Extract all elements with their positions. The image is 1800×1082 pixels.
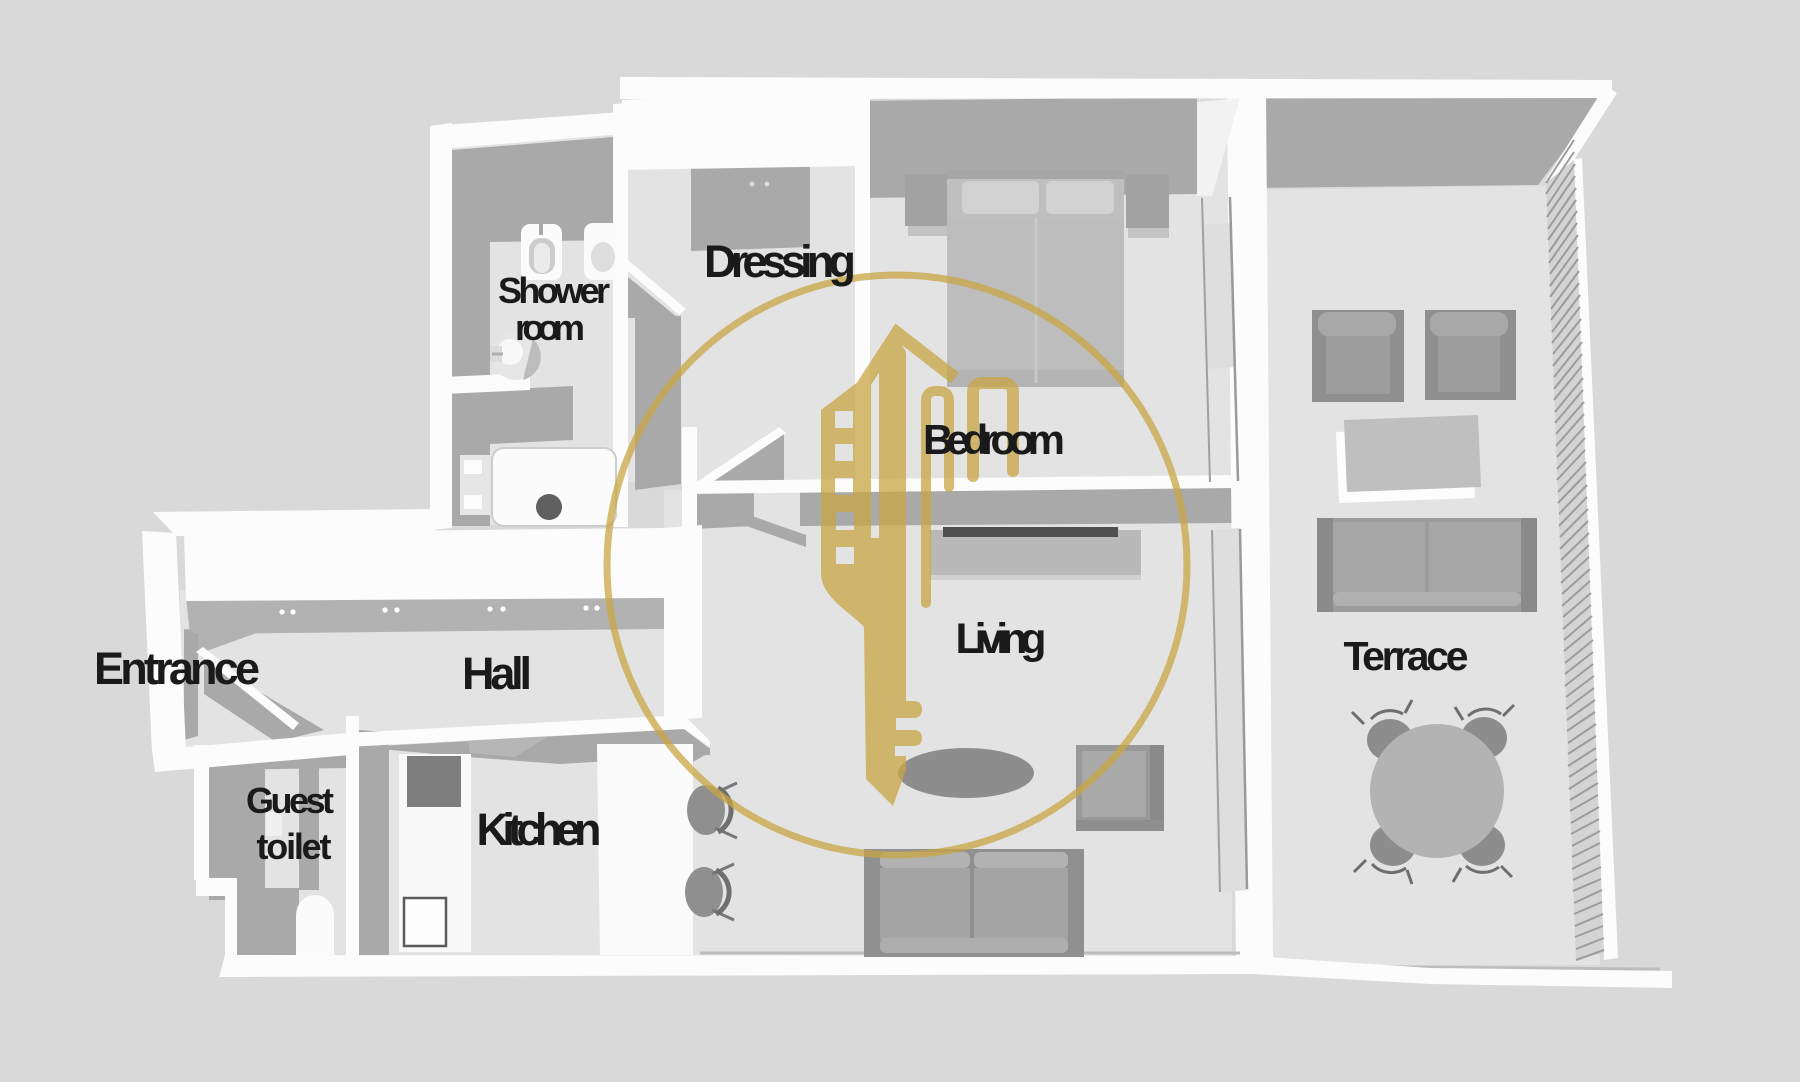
svg-text:Living: Living bbox=[956, 615, 1047, 663]
svg-text:toilet: toilet bbox=[257, 826, 332, 867]
svg-text:Entrance: Entrance bbox=[94, 643, 260, 694]
svg-text:Bedroom: Bedroom bbox=[923, 416, 1065, 463]
svg-text:Kitchen: Kitchen bbox=[477, 804, 602, 855]
svg-text:room: room bbox=[515, 307, 585, 348]
svg-text:Hall: Hall bbox=[462, 648, 532, 699]
svg-text:Dressing: Dressing bbox=[704, 236, 856, 287]
svg-text:Guest: Guest bbox=[246, 780, 334, 821]
svg-text:Terrace: Terrace bbox=[1344, 633, 1469, 679]
svg-text:Shower: Shower bbox=[498, 270, 610, 311]
